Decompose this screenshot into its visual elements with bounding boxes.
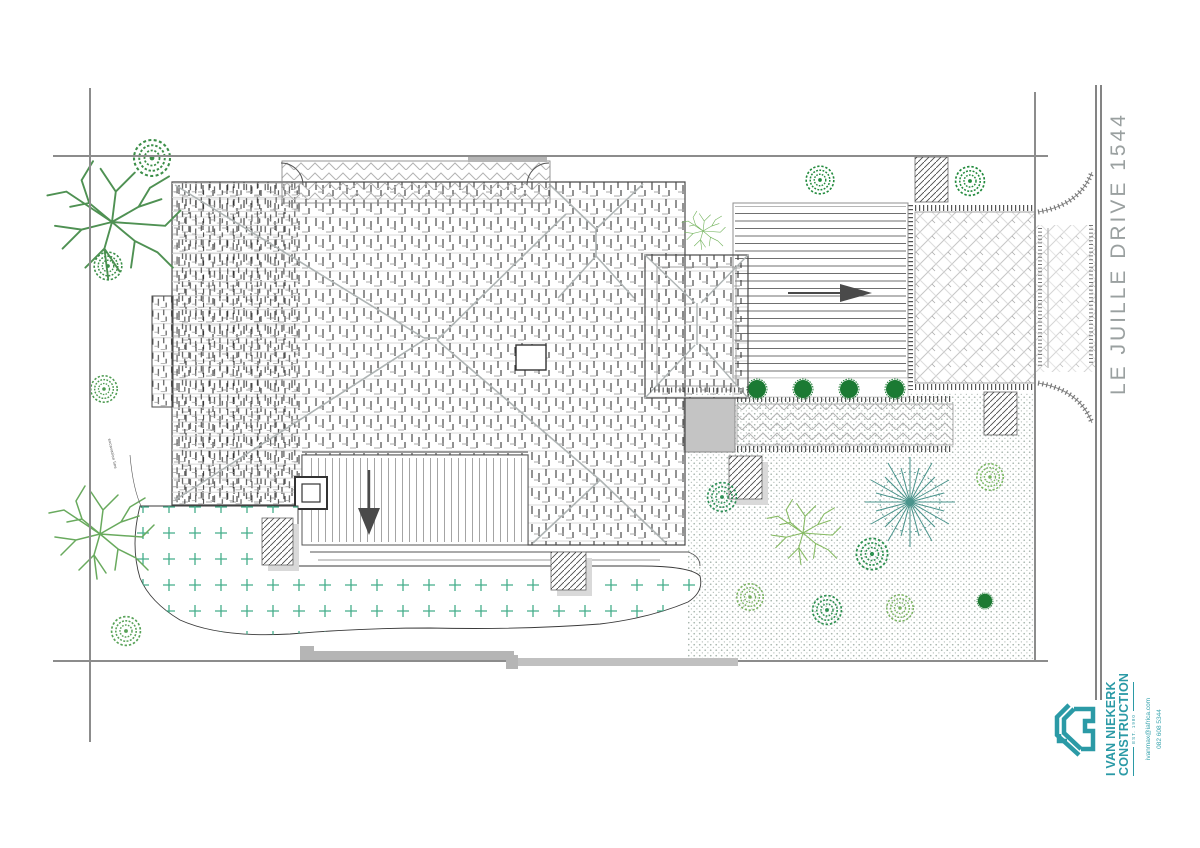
rear-paved-path [684,398,953,452]
construction-logo-icon [1045,699,1101,761]
rear-step-slab [684,398,735,452]
street-label-text: LE JUILLE DRIVE 1544 [1107,112,1130,395]
logo-name-line2: CONSTRUCTION [1118,682,1131,776]
logo-name-line1: I VAN NIEKERK [1105,682,1118,776]
street-label: LE JUILLE DRIVE 1544 [1107,155,1141,395]
driveway-apron [905,172,1096,423]
road-edge [1091,85,1101,700]
logo-tagline: EST. 1980 [1132,714,1137,744]
logo-email: ivanmax@iafrica.com [1143,687,1154,771]
right-wing-roof [645,255,748,398]
logo-phone: 082 608 5344 [1154,687,1165,771]
retaining-walls [300,646,738,669]
tree-branched-large [47,161,180,279]
deck-steps [310,552,700,566]
site-plan-page: LE JUILLE DRIVE 1544 excavation line I V… [0,0,1200,848]
roof-skylight [516,345,546,370]
deck-column [295,477,327,509]
entry-walkway [281,161,550,203]
site-plan-drawing [0,0,1200,848]
driveway-ramp [733,203,908,397]
construction-logo-text: I VAN NIEKERK CONSTRUCTION EST. 1980 [1105,682,1143,776]
construction-logo-contact: ivanmax@iafrica.com 082 608 5344 [1143,687,1167,771]
